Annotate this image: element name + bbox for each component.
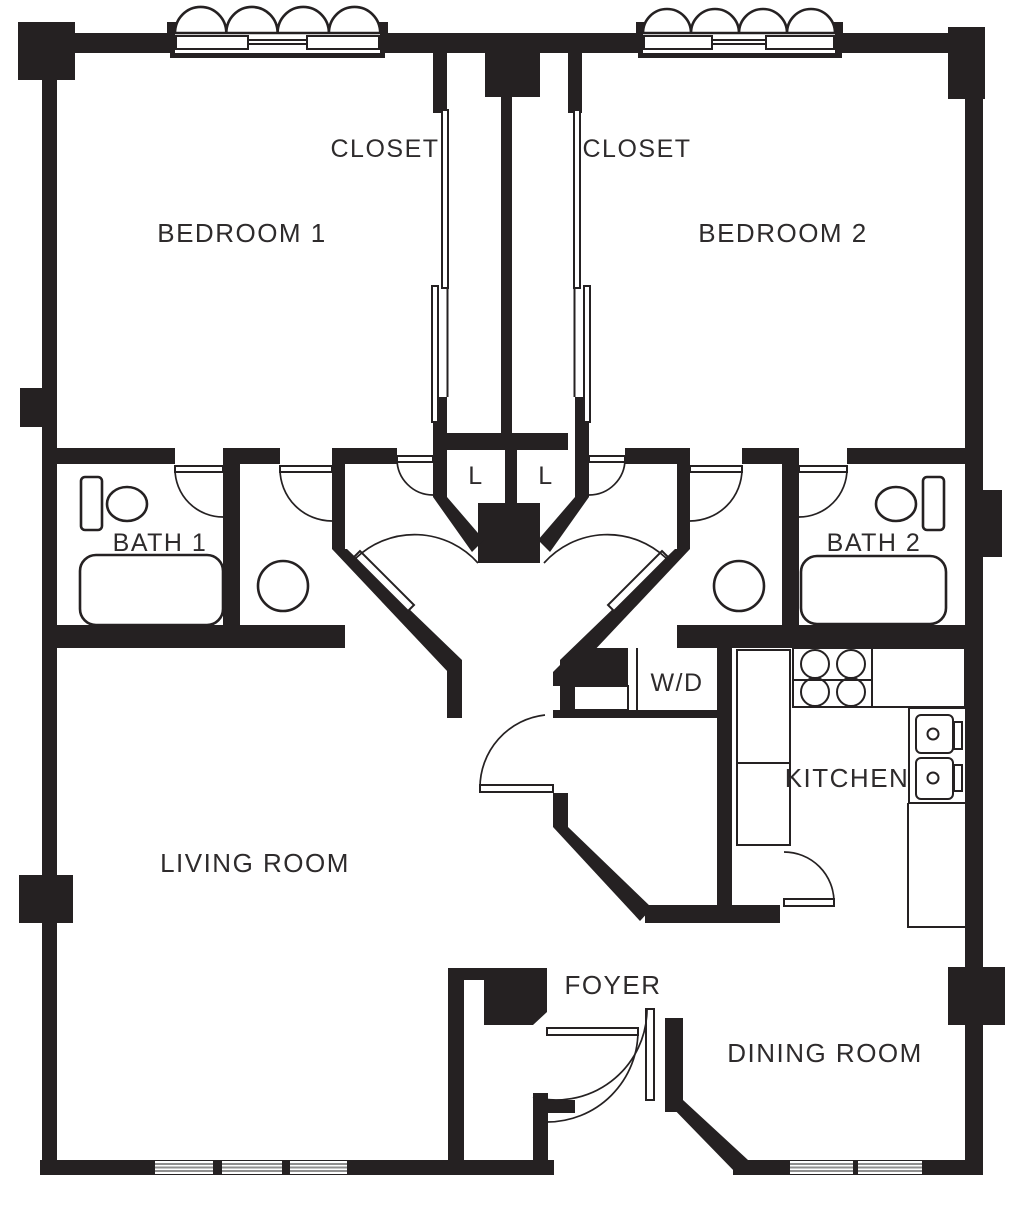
door-sink1 bbox=[280, 466, 332, 521]
door-leaf bbox=[799, 466, 847, 472]
window-bedroom2 bbox=[636, 9, 843, 58]
door-linen2 bbox=[589, 456, 625, 495]
sink-drain bbox=[928, 729, 939, 740]
burner-icon bbox=[837, 650, 865, 678]
stove-icon bbox=[793, 648, 872, 707]
wall-inner-diagonal-left bbox=[433, 497, 484, 552]
closet1-slider-panel bbox=[432, 286, 438, 422]
room-label-linen1: L bbox=[468, 462, 483, 490]
wall-bath2-divider bbox=[782, 464, 799, 625]
toilet-tank-icon bbox=[923, 477, 944, 530]
door-leaf bbox=[175, 466, 223, 472]
window-sash bbox=[307, 36, 379, 49]
wall-top-segment bbox=[57, 33, 175, 53]
stove-outline bbox=[793, 648, 872, 707]
toilet-tank-icon bbox=[81, 477, 102, 530]
wall-bath1-top bbox=[332, 448, 397, 464]
door-swing-arc bbox=[356, 535, 478, 563]
wall-kitchen-bottom bbox=[645, 905, 717, 923]
door-bath2 bbox=[799, 466, 847, 517]
room-label-closet1: CLOSET bbox=[330, 135, 439, 163]
closet1-slider-panel bbox=[442, 110, 448, 288]
wall-sink1 bbox=[332, 464, 345, 549]
curtain-scallops-icon bbox=[643, 9, 835, 33]
window-sill bbox=[638, 53, 842, 58]
sink-icon bbox=[258, 561, 308, 611]
door-sink2 bbox=[690, 466, 742, 521]
door-swing-arc bbox=[799, 469, 847, 517]
wall-closet2-column bbox=[568, 43, 582, 113]
window-sill bbox=[170, 53, 385, 58]
floorplan-svg: BEDROOM 1 BEDROOM 2 CLOSET CLOSET L L BA… bbox=[0, 0, 1025, 1210]
window-sash bbox=[644, 36, 712, 49]
curtain-scallops-icon bbox=[175, 7, 380, 33]
window-bedroom1 bbox=[167, 7, 388, 58]
closet2-slider-panel bbox=[574, 110, 580, 288]
kitchen-sink-icon bbox=[909, 708, 966, 803]
door-hall-bath1 bbox=[354, 535, 478, 611]
room-label-washer-dryer: W/D bbox=[650, 669, 703, 697]
wall-bath1-bottom bbox=[57, 625, 345, 648]
hall-nook-outline bbox=[570, 686, 628, 710]
door-leaf bbox=[397, 456, 433, 462]
wall-inner-diagonal-right bbox=[538, 497, 589, 552]
wall-hall-center-block bbox=[478, 503, 540, 563]
door-swing-arc bbox=[784, 852, 834, 902]
wall-hall-right-lower bbox=[553, 793, 568, 827]
door-leaf bbox=[646, 1009, 654, 1100]
pilaster-left-lower bbox=[19, 875, 73, 923]
window-sash bbox=[176, 36, 248, 49]
room-label-closet2: CLOSET bbox=[582, 135, 691, 163]
door-swing-arc bbox=[690, 469, 742, 521]
burner-icon bbox=[801, 678, 829, 706]
door-swing-arc bbox=[533, 1010, 647, 1100]
walls bbox=[18, 22, 1005, 1175]
door-leaf bbox=[784, 899, 834, 906]
wall-foyer-closet-top bbox=[464, 968, 547, 980]
pilaster-right-dining bbox=[948, 967, 1005, 1025]
door-swing-arc bbox=[544, 535, 666, 563]
wall-bath2-top bbox=[742, 448, 799, 464]
door-hallway-living bbox=[480, 715, 553, 792]
wall-bath1-top bbox=[223, 448, 280, 464]
door-leaf bbox=[690, 466, 742, 472]
door-entry bbox=[533, 1009, 654, 1100]
sink-handle bbox=[954, 722, 962, 749]
sink-basin bbox=[916, 715, 953, 753]
bathtub-icon bbox=[80, 555, 223, 625]
door-leaf bbox=[480, 785, 553, 792]
wall-entry-stub bbox=[548, 1100, 575, 1113]
sink-basin bbox=[916, 758, 953, 799]
burner-icon bbox=[837, 678, 865, 706]
sink-drain bbox=[928, 773, 939, 784]
floorplan-canvas: BEDROOM 1 BEDROOM 2 CLOSET CLOSET L L BA… bbox=[0, 0, 1025, 1210]
sink-icon bbox=[714, 561, 764, 611]
wall-dining-column bbox=[665, 1018, 683, 1112]
kitchen-counter bbox=[737, 650, 790, 763]
wall-bath2-top bbox=[625, 448, 690, 464]
toilet-bowl-icon bbox=[876, 487, 916, 521]
closet2-slider-panel bbox=[584, 286, 590, 422]
wall-living-diagonal bbox=[553, 827, 652, 921]
door-swing-arc bbox=[480, 715, 545, 788]
door-swing-arc bbox=[175, 469, 223, 517]
window-sash bbox=[766, 36, 834, 49]
room-label-bath2: BATH 2 bbox=[827, 529, 922, 557]
wall-bath1-top bbox=[57, 448, 175, 464]
door-leaf bbox=[547, 1028, 638, 1035]
wall-kitchen-bottom bbox=[717, 905, 780, 923]
wall-bath2-top bbox=[847, 448, 965, 464]
wall-wd-chunk bbox=[575, 648, 628, 686]
door-swing-arc bbox=[280, 469, 332, 521]
wall-closet-center bbox=[501, 97, 512, 433]
room-label-foyer: FOYER bbox=[564, 970, 661, 1000]
wall-top-segment bbox=[835, 33, 965, 53]
kitchen-counter bbox=[737, 763, 790, 845]
toilet-bowl-icon bbox=[107, 487, 147, 521]
wall-left bbox=[42, 55, 57, 1175]
wall-foyer-closet-left bbox=[448, 968, 464, 1160]
bathtub-icon bbox=[801, 556, 946, 624]
room-label-linen2: L bbox=[538, 462, 553, 490]
wall-foyer-closet-body bbox=[484, 980, 547, 1025]
room-label-dining-room: DINING ROOM bbox=[727, 1038, 923, 1068]
pilaster-left-upper bbox=[20, 388, 57, 427]
wall-wd-chunk bbox=[553, 650, 575, 686]
wall-bath1-divider bbox=[223, 464, 240, 625]
wall-foyer-closet-column bbox=[533, 1093, 548, 1160]
kitchen-counter bbox=[872, 648, 965, 707]
wall-hall-left bbox=[447, 660, 462, 718]
kitchen-counter bbox=[908, 803, 965, 927]
door-kitchen bbox=[784, 852, 834, 906]
wall-outer-diagonal-left bbox=[332, 549, 462, 672]
pilaster-right-bath2 bbox=[967, 490, 1002, 557]
wall-sink2 bbox=[677, 464, 690, 549]
room-label-living-room: LIVING ROOM bbox=[160, 848, 350, 878]
door-swing-arc bbox=[397, 459, 433, 495]
wall-closet1-column bbox=[433, 43, 447, 113]
room-label-bedroom2: BEDROOM 2 bbox=[698, 218, 868, 248]
door-linen1 bbox=[397, 456, 433, 495]
wall-kitchen-left bbox=[717, 648, 732, 905]
wall-wd-band bbox=[553, 710, 732, 718]
door-hall-bath2 bbox=[544, 535, 668, 611]
door-bath1 bbox=[175, 466, 223, 517]
door-leaf bbox=[280, 466, 332, 472]
room-label-kitchen: KITCHEN bbox=[785, 763, 910, 793]
burner-icon bbox=[801, 650, 829, 678]
sink-handle bbox=[954, 765, 962, 791]
door-swing-arc bbox=[589, 459, 625, 495]
wall-linen-center bbox=[505, 433, 517, 505]
windows-living-room bbox=[155, 1161, 347, 1174]
wall-bath2-bottom bbox=[677, 625, 965, 648]
wall-closet-top-block bbox=[485, 43, 540, 97]
room-label-bath1: BATH 1 bbox=[113, 529, 208, 557]
door-leaf bbox=[589, 456, 625, 462]
room-label-bedroom1: BEDROOM 1 bbox=[157, 218, 327, 248]
